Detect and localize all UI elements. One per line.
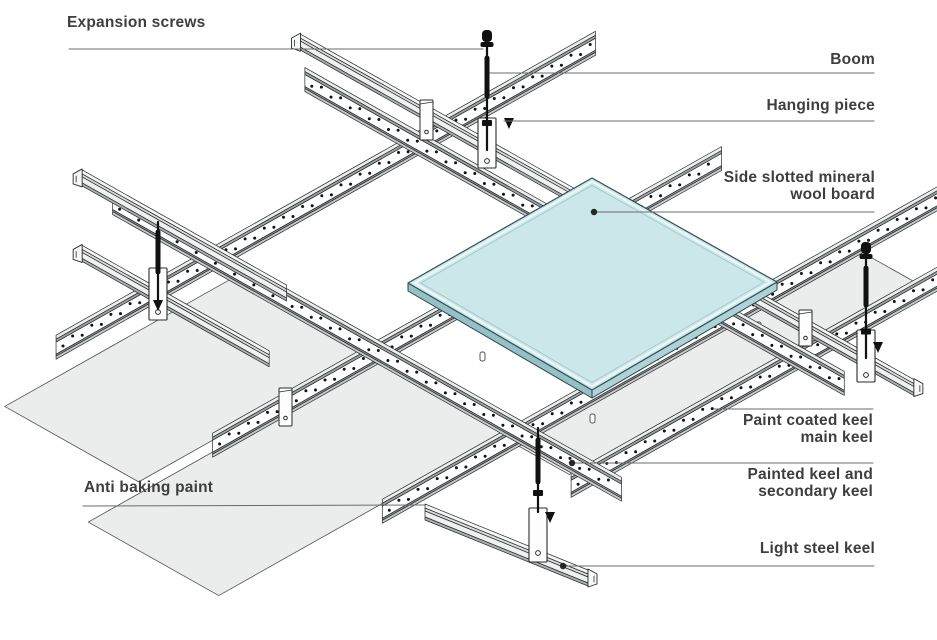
label-anti-baking-paint: Anti baking paint [84,479,213,496]
leader-dot [569,460,575,466]
label-hanging-piece: Hanging piece [766,97,875,114]
label-painted-keel-and-secondary-keel: Painted keel and secondary keel [747,466,873,500]
label-light-steel-keel: Light steel keel [760,540,875,557]
label-boom: Boom [830,51,875,68]
label-paint-coated-keel-main-keel: Paint coated keel main keel [743,412,873,446]
leader-dot [591,209,597,215]
leader-side-slotted-mineral-wool-board [591,209,874,215]
ceiling-system-diagram: Expansion screwsBoomHanging pieceSide sl… [0,0,937,640]
label-expansion-screws: Expansion screws [67,14,205,31]
label-side-slotted-mineral-wool-board: Side slotted mineral wool board [724,169,875,203]
leader-anti-baking-paint [83,505,424,506]
leader-dot [560,563,566,569]
leader-light-steel-keel [560,563,874,569]
